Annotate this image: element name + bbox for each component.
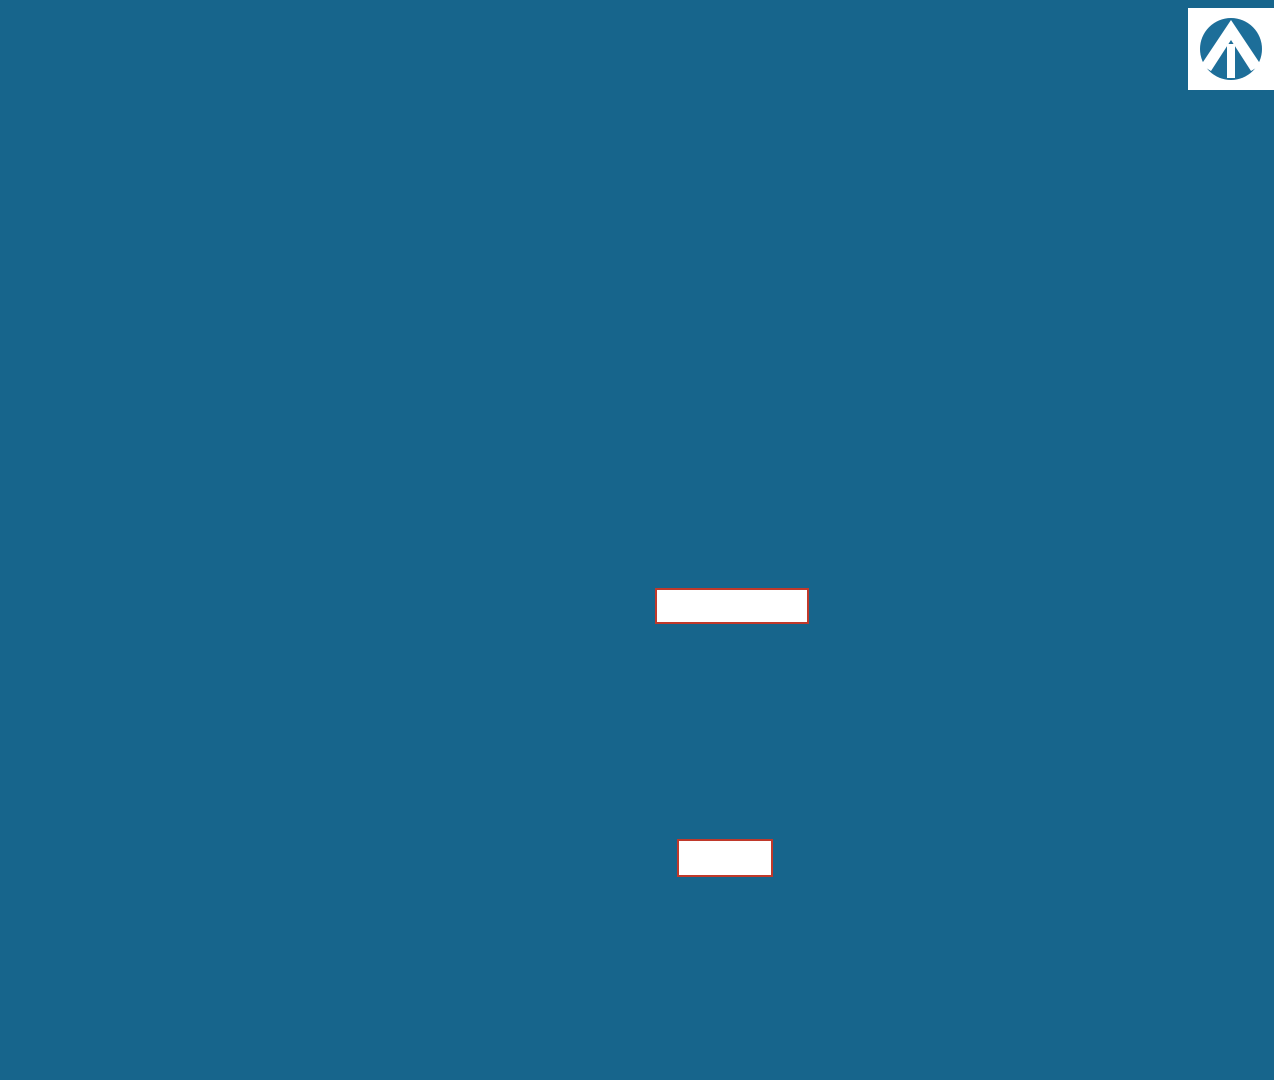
plan-annotation-box-1	[655, 588, 809, 624]
plan-annotation-box-2	[677, 839, 773, 877]
developer-logo-icon	[1188, 8, 1274, 90]
site-plan	[0, 0, 1274, 1080]
subdivision-map	[0, 0, 1274, 1080]
